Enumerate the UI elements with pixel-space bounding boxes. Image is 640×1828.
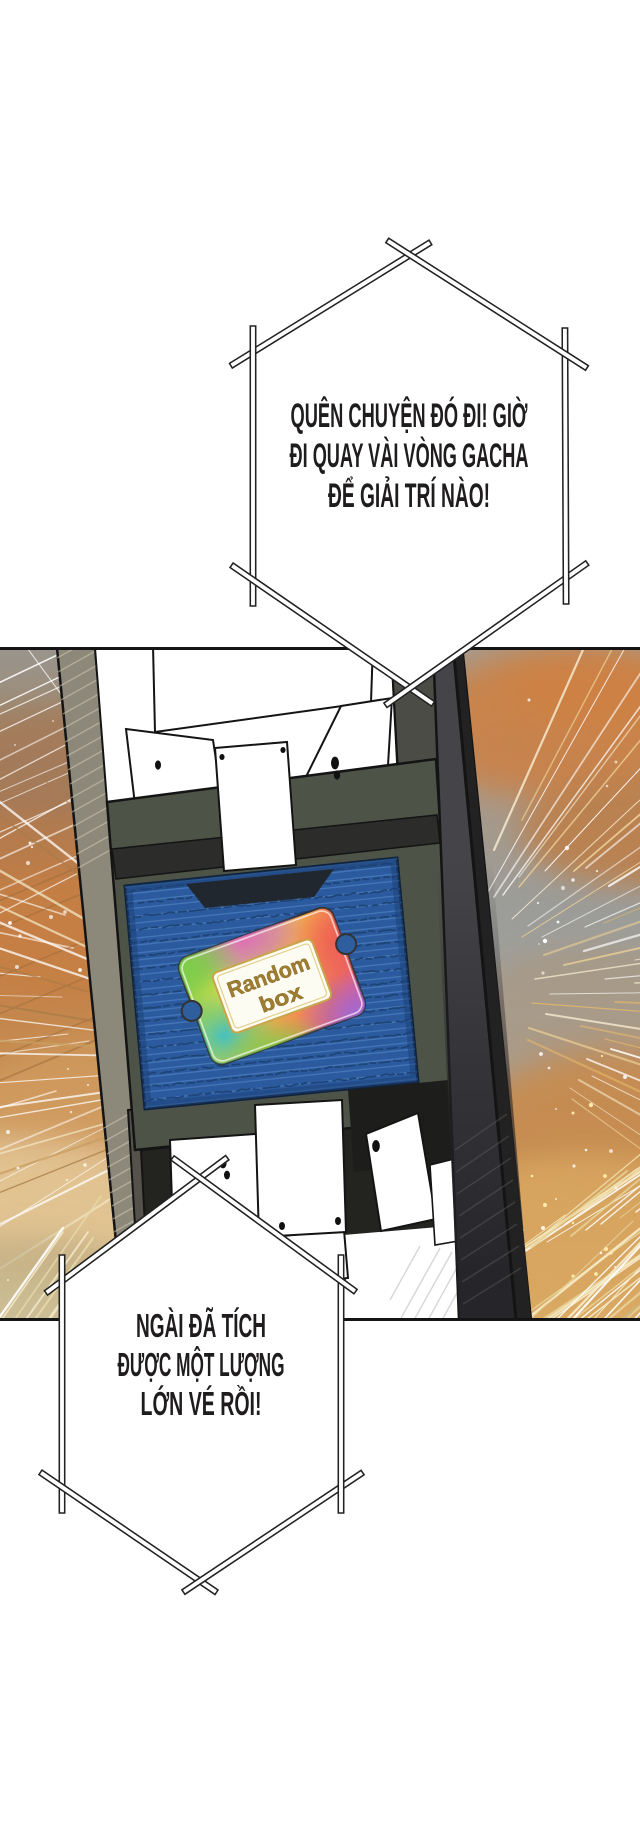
svg-text:ĐƯỢC MỘT LƯỢNG: ĐƯỢC MỘT LƯỢNG xyxy=(118,1345,285,1383)
svg-text:QUÊN CHUYỆN ĐÓ ĐI! GIỜ: QUÊN CHUYỆN ĐÓ ĐI! GIỜ xyxy=(291,397,528,435)
svg-text:NGÀI ĐÃ TÍCH: NGÀI ĐÃ TÍCH xyxy=(136,1307,266,1344)
svg-text:LỚN VÉ RỒI!: LỚN VÉ RỒI! xyxy=(141,1385,262,1422)
svg-text:ĐI QUAY VÀI VÒNG GACHA: ĐI QUAY VÀI VÒNG GACHA xyxy=(290,437,529,475)
svg-text:ĐỂ GIẢI TRÍ NÀO!: ĐỂ GIẢI TRÍ NÀO! xyxy=(328,477,490,515)
